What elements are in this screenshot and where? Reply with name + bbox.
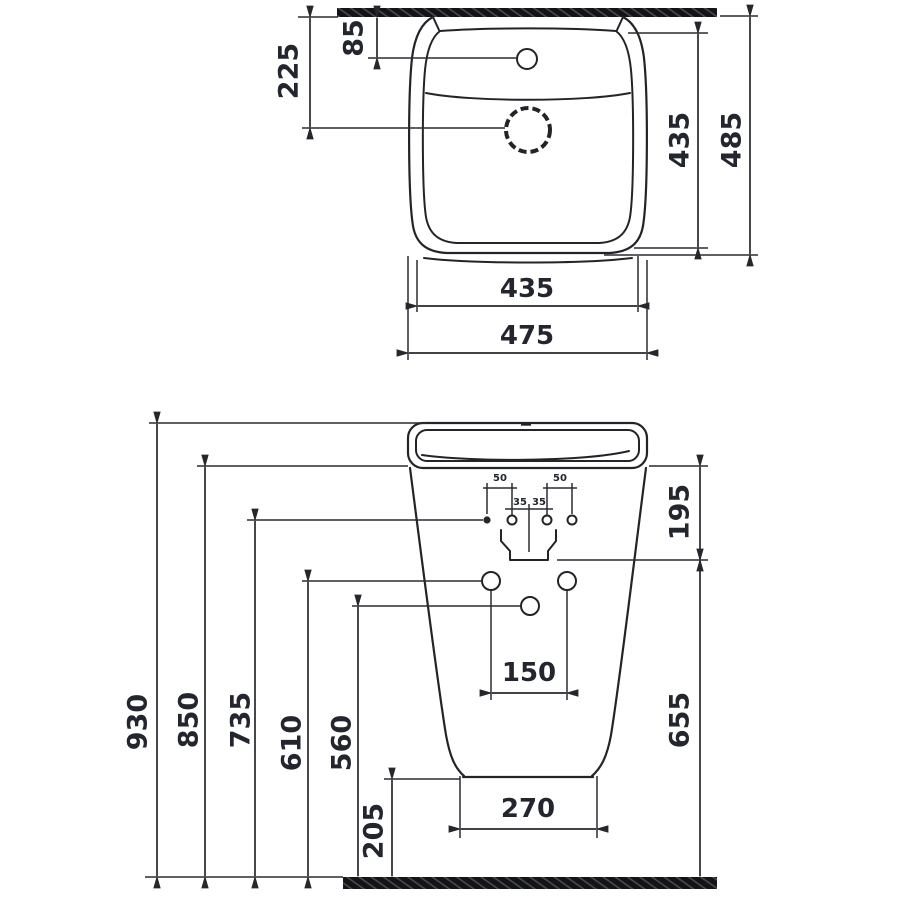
back-corner-tick-left bbox=[433, 17, 439, 30]
dim-label-205: 205 bbox=[359, 803, 390, 859]
leader-dot bbox=[483, 516, 490, 523]
dim-label-270: 270 bbox=[501, 794, 555, 824]
dim-label-195: 195 bbox=[665, 484, 696, 540]
fixing-template: 50 50 35 35 bbox=[483, 473, 577, 560]
dim-label-435-width: 435 bbox=[500, 274, 554, 304]
fixing-label-50-left: 50 bbox=[493, 473, 507, 484]
rim-interior-curve bbox=[422, 451, 629, 460]
basin-inner-outline bbox=[423, 28, 633, 243]
dim-label-610: 610 bbox=[277, 715, 308, 771]
body-left-outline bbox=[410, 468, 464, 776]
drain-hole bbox=[506, 108, 550, 152]
top-view: 85 225 435 485 435 475 bbox=[274, 16, 759, 360]
fixing-label-35-right: 35 bbox=[532, 497, 546, 508]
dim-label-85: 85 bbox=[339, 19, 370, 57]
back-ledge-line bbox=[426, 93, 630, 100]
mount-hole-right bbox=[558, 572, 576, 590]
body-right-outline bbox=[592, 468, 646, 776]
dim-label-850: 850 bbox=[174, 692, 205, 748]
wall-hatch-bar bbox=[337, 8, 717, 17]
fixing-label-50-right: 50 bbox=[553, 473, 567, 484]
basin-outer-outline bbox=[409, 17, 647, 253]
back-corner-tick-right bbox=[617, 17, 623, 30]
wall-section bbox=[298, 8, 717, 17]
mount-hole-left bbox=[482, 572, 500, 590]
dim-label-225: 225 bbox=[274, 43, 305, 99]
fixing-hole-right bbox=[543, 516, 552, 525]
technical-drawing-canvas: 85 225 435 485 435 475 50 bbox=[0, 0, 900, 900]
front-rim-line bbox=[424, 258, 632, 263]
fixing-hole-outer bbox=[568, 516, 577, 525]
dim-label-150: 150 bbox=[502, 658, 556, 688]
dim-label-475: 475 bbox=[500, 321, 554, 351]
floor-section bbox=[145, 877, 717, 889]
fixing-hole-left bbox=[508, 516, 517, 525]
tap-hole bbox=[517, 49, 537, 69]
dim-label-930: 930 bbox=[123, 694, 154, 750]
front-view: 50 50 35 35 150 bbox=[123, 423, 709, 876]
fixing-label-35-left: 35 bbox=[513, 497, 527, 508]
washbasin-dimension-drawing: 85 225 435 485 435 475 50 bbox=[0, 0, 900, 900]
rim-inner-outline bbox=[416, 430, 639, 461]
mount-hole-center bbox=[521, 597, 539, 615]
dim-label-735: 735 bbox=[226, 692, 257, 748]
dim-label-655: 655 bbox=[665, 692, 696, 748]
dim-label-560: 560 bbox=[327, 715, 358, 771]
floor-hatch-bar bbox=[343, 877, 717, 889]
dim-label-435-depth: 435 bbox=[665, 112, 696, 168]
dim-label-485: 485 bbox=[717, 112, 748, 168]
